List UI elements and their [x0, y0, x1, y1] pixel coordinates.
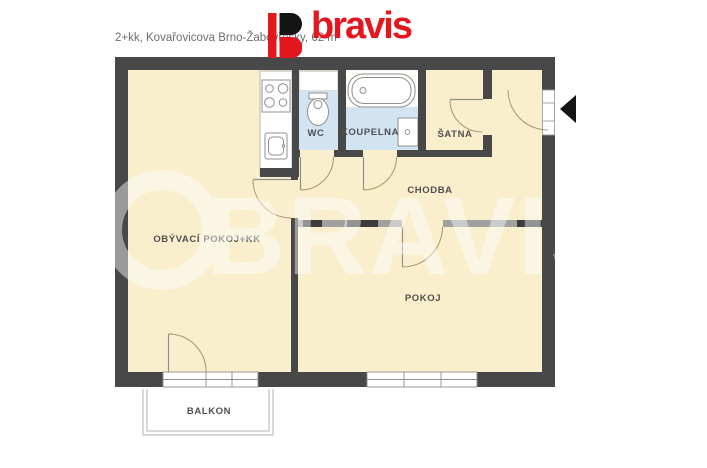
- bedroom-window: [367, 372, 477, 387]
- washing-machine-icon: [398, 118, 418, 146]
- floorplan-page: 2+kk, Kovařovicova Brno-Žabovřesky, 62 m…: [0, 0, 707, 468]
- entrance-arrow-icon: [560, 95, 576, 123]
- entrance-door: [543, 90, 555, 135]
- living-room-window: [163, 372, 258, 387]
- toilet-icon: [308, 93, 329, 126]
- room-label-bathroom: KOUPELNA: [341, 127, 399, 138]
- room-label-wc: WC: [307, 128, 324, 139]
- room-label-balcony: BALKON: [187, 406, 231, 417]
- room-label-living: OBÝVACÍ POKOJ+KK: [153, 233, 260, 245]
- room-label-closet: ŠATNA: [437, 128, 472, 140]
- shaft-box: [299, 71, 338, 91]
- stove-icon: [262, 80, 290, 112]
- room-label-bedroom: POKOJ: [405, 293, 441, 304]
- bravis-logo-icon: [268, 13, 302, 58]
- room-label-hallway: CHODBA: [407, 185, 452, 196]
- bravis-logo: bravis: [268, 13, 411, 58]
- bathtub-icon: [348, 74, 415, 107]
- bravis-logo-text: bravis: [311, 4, 411, 50]
- floor-plan: OBÝVACÍ POKOJ+KK WC KOUPELNA ŠATNA CHODB…: [115, 57, 585, 447]
- kitchen-sink-icon: [265, 133, 287, 159]
